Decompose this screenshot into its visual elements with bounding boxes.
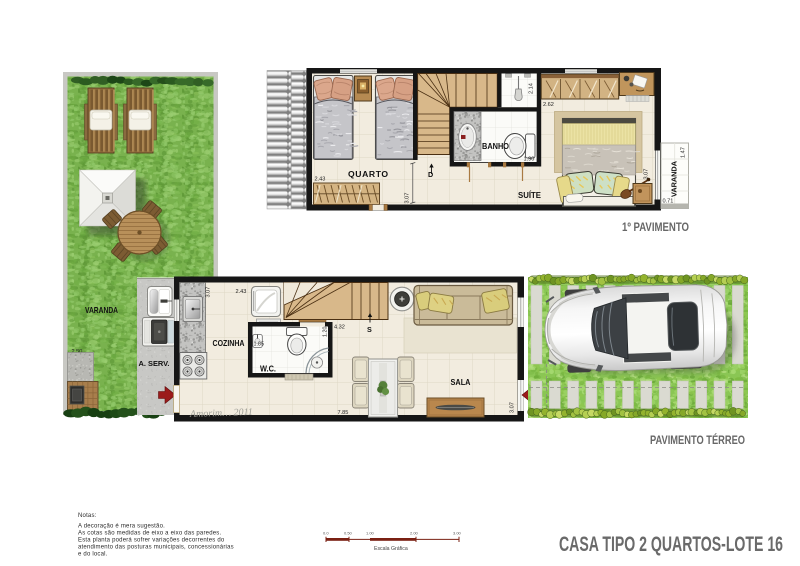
svg-text:VARANDA: VARANDA bbox=[85, 305, 118, 315]
svg-text:COZINHA: COZINHA bbox=[213, 339, 245, 348]
svg-text:VARANDA: VARANDA bbox=[670, 160, 679, 197]
svg-text:A. SERV.: A. SERV. bbox=[139, 359, 170, 368]
svg-text:S: S bbox=[367, 325, 372, 334]
svg-text:2.62: 2.62 bbox=[543, 102, 554, 108]
svg-text:Esta planta poderá sofrer vari: Esta planta poderá sofrer variações deco… bbox=[78, 538, 225, 544]
svg-text:3.00: 3.00 bbox=[453, 531, 462, 536]
svg-text:2.00: 2.00 bbox=[410, 531, 419, 536]
svg-text:atendimento das posturas munic: atendimento das posturas municipais, con… bbox=[78, 545, 234, 551]
svg-text:PAVIMENTO TÉRREO: PAVIMENTO TÉRREO bbox=[650, 432, 745, 447]
svg-text:1.47: 1.47 bbox=[681, 147, 687, 158]
svg-text:1º PAVIMENTO: 1º PAVIMENTO bbox=[622, 220, 689, 234]
svg-text:SALA: SALA bbox=[451, 377, 471, 387]
svg-text:7.85: 7.85 bbox=[338, 410, 349, 416]
svg-text:SUÍTE: SUÍTE bbox=[518, 190, 541, 200]
svg-text:0.50: 0.50 bbox=[344, 531, 353, 536]
svg-text:D: D bbox=[428, 170, 433, 179]
svg-text:CASA TIPO 2 QUARTOS-LOTE 16: CASA TIPO 2 QUARTOS-LOTE 16 bbox=[559, 533, 783, 556]
svg-text:1.00: 1.00 bbox=[366, 531, 375, 536]
svg-text:3.07: 3.07 bbox=[510, 402, 516, 413]
svg-text:2.14: 2.14 bbox=[529, 83, 535, 94]
svg-text:2.43: 2.43 bbox=[315, 177, 326, 183]
svg-text:3.07: 3.07 bbox=[405, 193, 411, 204]
svg-text:4.32: 4.32 bbox=[334, 325, 345, 331]
svg-text:Notas:: Notas: bbox=[78, 513, 97, 519]
svg-text:Amorim… 2011: Amorim… 2011 bbox=[189, 407, 253, 420]
svg-text:3.07: 3.07 bbox=[644, 169, 650, 180]
svg-text:QUARTO: QUARTO bbox=[348, 169, 389, 179]
svg-text:As cotas são medidas de eixo a: As cotas são medidas de eixo a eixo das … bbox=[78, 531, 221, 537]
svg-text:A decoração é mera sugestão.: A decoração é mera sugestão. bbox=[78, 524, 165, 530]
svg-text:1.20: 1.20 bbox=[323, 327, 329, 338]
svg-text:Escala Gráfica: Escala Gráfica bbox=[374, 546, 408, 552]
svg-text:1.90: 1.90 bbox=[524, 157, 535, 163]
svg-text:W.C.: W.C. bbox=[260, 365, 276, 374]
svg-text:BANHO: BANHO bbox=[482, 142, 510, 151]
svg-text:e do local.: e do local. bbox=[78, 552, 108, 558]
svg-text:0.0: 0.0 bbox=[323, 531, 329, 536]
svg-text:2.43: 2.43 bbox=[236, 289, 247, 295]
svg-text:0.71: 0.71 bbox=[663, 199, 674, 205]
svg-text:3.07: 3.07 bbox=[206, 287, 212, 298]
svg-text:1.85: 1.85 bbox=[254, 342, 265, 348]
